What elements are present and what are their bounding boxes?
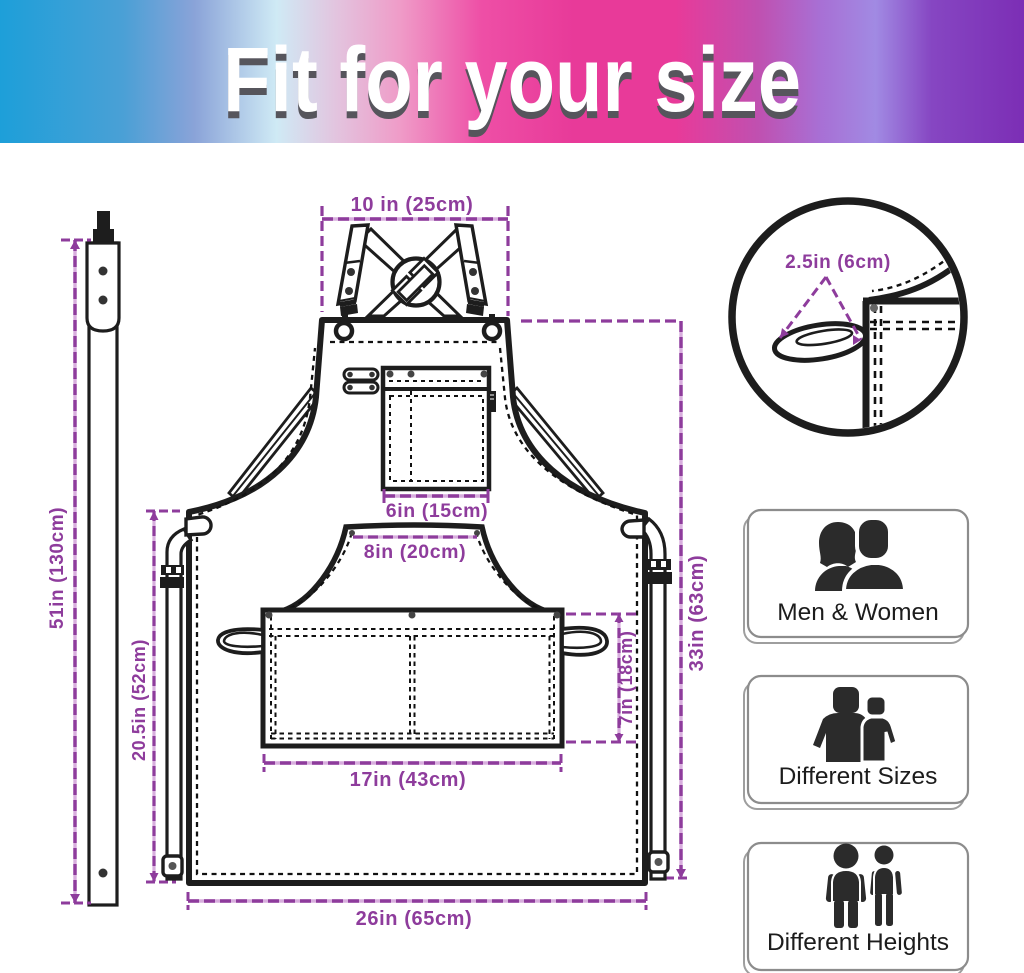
svg-text:6in (15cm): 6in (15cm) xyxy=(386,500,488,522)
svg-text:Men & Women: Men & Women xyxy=(777,599,939,626)
svg-text:2.5in (6cm): 2.5in (6cm) xyxy=(785,252,891,273)
svg-text:51in (130cm): 51in (130cm) xyxy=(47,507,68,629)
svg-text:20.5in (52cm): 20.5in (52cm) xyxy=(129,639,149,761)
svg-text:33in (63cm): 33in (63cm) xyxy=(686,555,708,672)
svg-text:8in (20cm): 8in (20cm) xyxy=(364,541,466,563)
svg-text:Different Sizes: Different Sizes xyxy=(779,763,938,790)
svg-text:Different Heights: Different Heights xyxy=(767,929,949,956)
svg-text:17in (43cm): 17in (43cm) xyxy=(350,769,467,791)
svg-text:26in (65cm): 26in (65cm) xyxy=(356,908,473,930)
svg-text:10 in (25cm): 10 in (25cm) xyxy=(351,194,474,216)
svg-text:7in (18cm): 7in (18cm) xyxy=(616,630,636,725)
svg-text:Fit for your size: Fit for your size xyxy=(223,29,801,131)
